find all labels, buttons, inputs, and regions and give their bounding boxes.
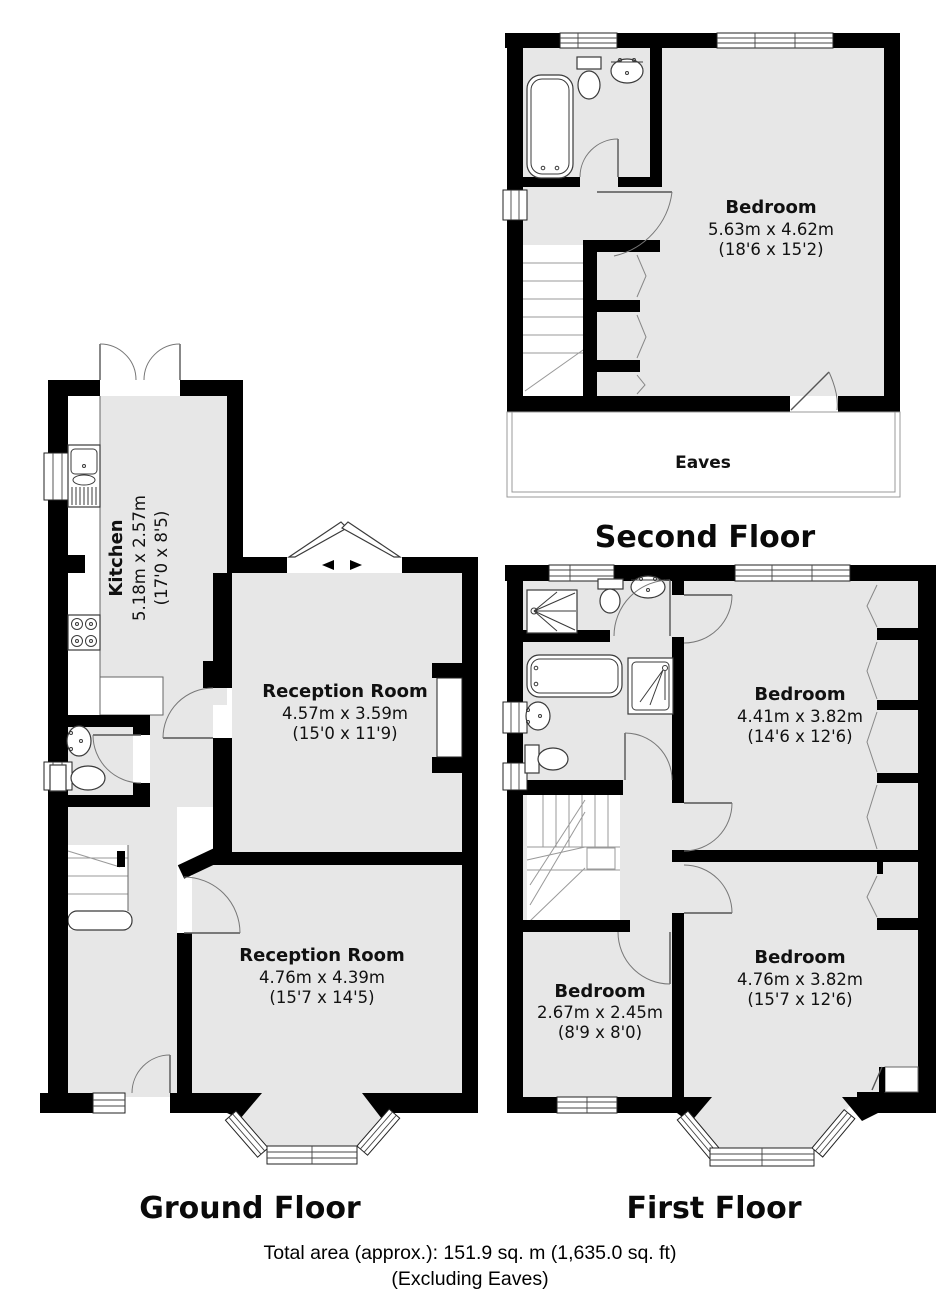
toilet bbox=[50, 765, 105, 791]
room-label: Reception Room bbox=[262, 681, 427, 702]
room-dimensions-metric: 5.63m x 4.62m bbox=[708, 220, 834, 239]
floorplan-page: Eaves Bedroom 5.63m x 4.62m (18'6 x 15'2… bbox=[0, 0, 940, 1302]
front-door-steps bbox=[93, 1093, 125, 1113]
room-dimensions-imperial: (8'9 x 8'0) bbox=[558, 1023, 642, 1042]
window bbox=[557, 1097, 617, 1113]
room-label: Reception Room bbox=[239, 945, 404, 966]
shower bbox=[527, 590, 577, 633]
chimney-breast bbox=[432, 663, 462, 773]
window bbox=[717, 33, 833, 48]
hob bbox=[68, 615, 100, 650]
shower bbox=[628, 658, 673, 714]
room-label: Bedroom bbox=[754, 684, 845, 705]
room-dimensions-imperial: (15'7 x 12'6) bbox=[747, 990, 852, 1009]
room-dimensions-imperial: (15'0 x 11'9) bbox=[292, 724, 397, 743]
french-doors bbox=[100, 344, 180, 380]
kitchen-sink bbox=[68, 445, 100, 507]
ground-floor-plan: Kitchen 5.18m x 2.57m (17'0 x 8'5) Recep… bbox=[40, 344, 478, 1226]
room-dimensions-imperial: (14'6 x 12'6) bbox=[747, 727, 852, 746]
eaves-area: Eaves bbox=[507, 412, 900, 497]
bathtub bbox=[527, 655, 622, 697]
svg-text:(17'0 x 8'5): (17'0 x 8'5) bbox=[152, 511, 171, 606]
floor-title-ground: Ground Floor bbox=[139, 1191, 361, 1226]
room-label: Bedroom bbox=[725, 197, 816, 218]
room-dimensions-metric: 4.76m x 4.39m bbox=[259, 968, 385, 987]
excluding-eaves-text: (Excluding Eaves) bbox=[391, 1268, 548, 1290]
room-dimensions-imperial: (18'6 x 15'2) bbox=[718, 240, 823, 259]
sink bbox=[526, 702, 550, 730]
floorplan-drawing: Eaves Bedroom 5.63m x 4.62m (18'6 x 15'2… bbox=[0, 0, 940, 1302]
room-dimensions-metric: 2.67m x 2.45m bbox=[537, 1003, 663, 1022]
sink bbox=[611, 59, 643, 84]
eaves-label: Eaves bbox=[675, 453, 731, 473]
toilet bbox=[577, 57, 601, 99]
sink bbox=[67, 726, 91, 756]
footer: Total area (approx.): 151.9 sq. m (1,635… bbox=[264, 1242, 677, 1290]
room-dimensions-metric: 4.76m x 3.82m bbox=[737, 970, 863, 989]
sink bbox=[631, 576, 665, 598]
floor-title-second: Second Floor bbox=[595, 520, 816, 555]
svg-text:Kitchen: Kitchen bbox=[106, 519, 127, 596]
arrow-right-icon bbox=[350, 560, 362, 570]
staircase bbox=[527, 795, 620, 923]
room-dimensions-imperial: (15'7 x 14'5) bbox=[269, 988, 374, 1007]
second-floor-plan: Eaves Bedroom 5.63m x 4.62m (18'6 x 15'2… bbox=[503, 33, 900, 555]
window bbox=[560, 33, 617, 48]
svg-text:5.18m x 2.57m: 5.18m x 2.57m bbox=[130, 495, 149, 621]
arrow-left-icon bbox=[322, 560, 334, 570]
window bbox=[503, 702, 527, 733]
bathtub bbox=[527, 75, 573, 178]
room-label: Bedroom bbox=[754, 947, 845, 968]
total-area-text: Total area (approx.): 151.9 sq. m (1,635… bbox=[264, 1242, 677, 1264]
window bbox=[503, 763, 527, 790]
french-doors bbox=[289, 522, 400, 570]
room-dimensions-metric: 4.41m x 3.82m bbox=[737, 707, 863, 726]
floor-title-first: First Floor bbox=[626, 1191, 801, 1226]
room-dimensions-metric: 4.57m x 3.59m bbox=[282, 704, 408, 723]
window bbox=[503, 190, 527, 220]
room-label: Bedroom bbox=[554, 981, 645, 1002]
first-floor-plan: Bedroom 4.41m x 3.82m (14'6 x 12'6) Bedr… bbox=[503, 565, 936, 1226]
staircase bbox=[523, 245, 583, 396]
hall-passage bbox=[150, 705, 213, 807]
staircase bbox=[68, 845, 132, 930]
window bbox=[735, 565, 850, 581]
